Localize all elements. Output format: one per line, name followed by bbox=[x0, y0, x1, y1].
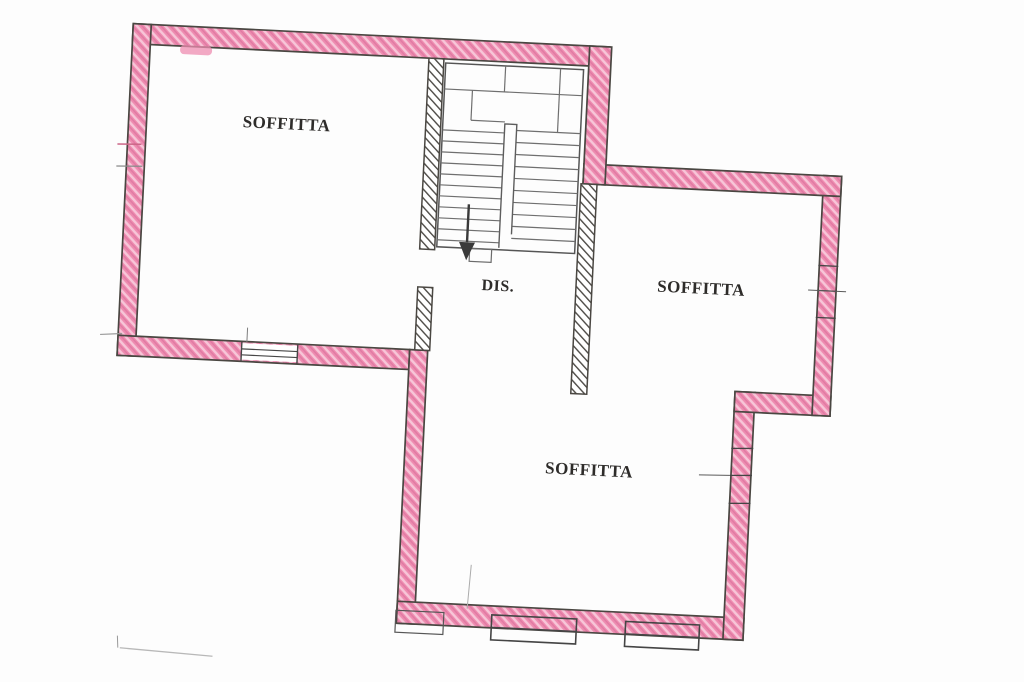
wall-joint bbox=[725, 619, 743, 639]
wall-dis-stub bbox=[415, 287, 433, 351]
scanned-floor-plan-page: SOFFITTA DIS. SOFFITTA SOFFITTA bbox=[0, 0, 1024, 682]
wall-joint bbox=[398, 603, 414, 623]
wall-joint bbox=[736, 393, 754, 411]
wall-joint bbox=[590, 48, 610, 66]
wall-joint bbox=[134, 25, 150, 43]
wall-joint bbox=[824, 177, 840, 195]
wall-joint bbox=[119, 337, 135, 355]
window-jamb bbox=[297, 345, 298, 364]
room-label-dis: DIS. bbox=[481, 277, 514, 296]
wall-joint bbox=[585, 165, 605, 183]
highlighter-smudge bbox=[180, 45, 212, 56]
window-jamb bbox=[241, 342, 242, 361]
window-gap bbox=[241, 343, 298, 362]
wall-joint bbox=[410, 351, 426, 369]
floor-plan-svg: SOFFITTA DIS. SOFFITTA SOFFITTA bbox=[0, 0, 1024, 682]
wall-joint bbox=[814, 397, 830, 415]
